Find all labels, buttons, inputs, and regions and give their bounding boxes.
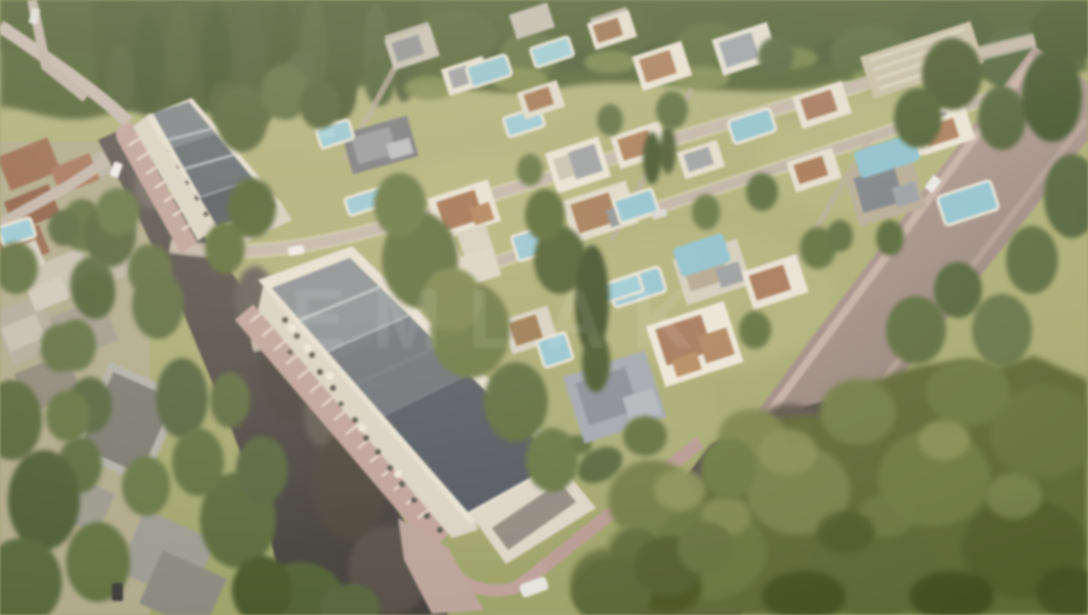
svg-text:EMLAK: EMLAK bbox=[290, 272, 719, 366]
